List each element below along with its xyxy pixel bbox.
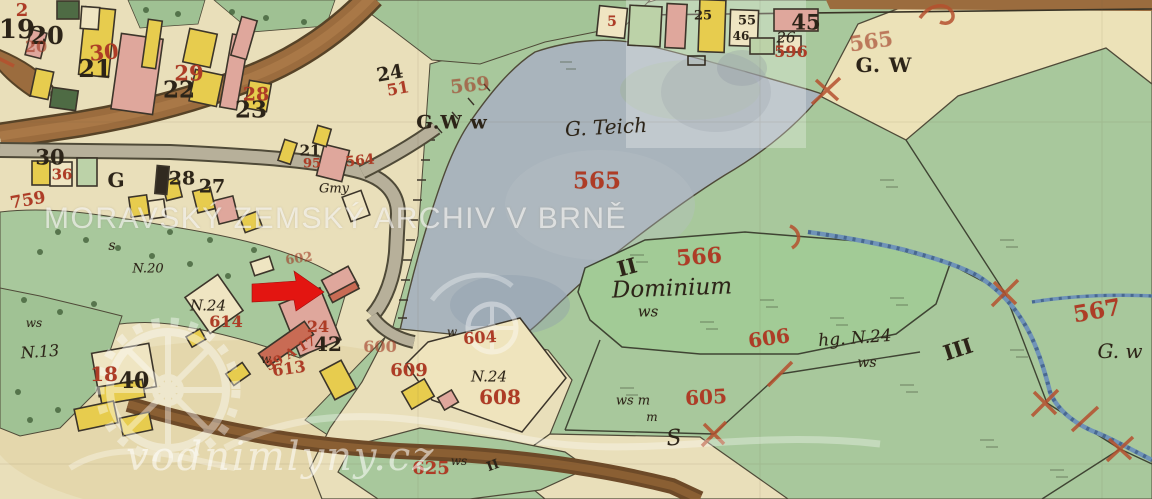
cadastral-map-viewport[interactable]: 21920203021292228232451569G.W wG. Teich5… [0, 0, 1152, 499]
map-artwork [0, 0, 1152, 499]
